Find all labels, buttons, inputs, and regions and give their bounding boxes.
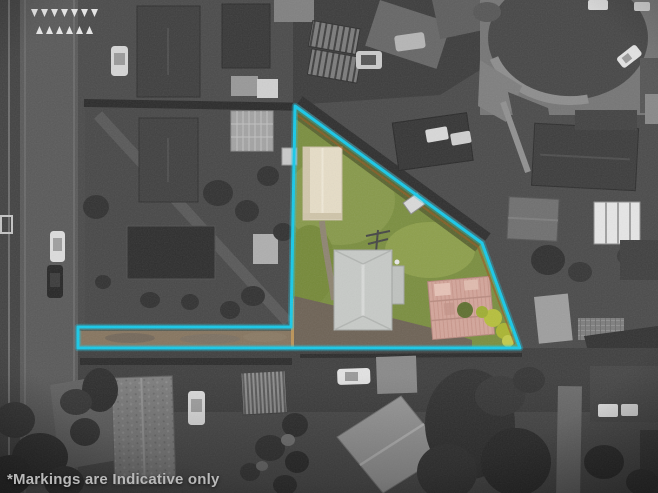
markings-disclaimer: *Markings are Indicative only [7,471,220,488]
aerial-photo: *Markings are Indicative only [0,0,658,493]
bottom-shade-overlay [0,0,658,493]
aerial-photo-canvas [0,0,658,493]
